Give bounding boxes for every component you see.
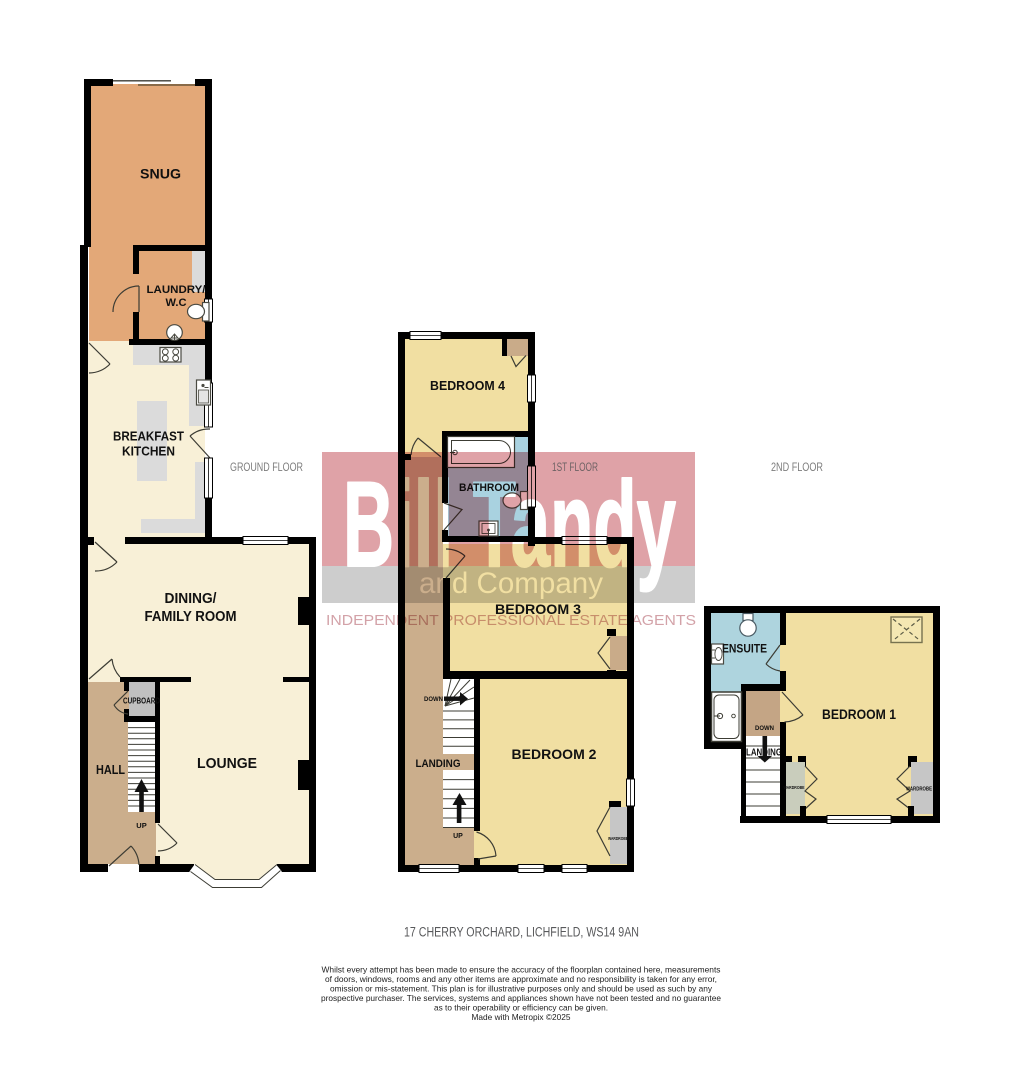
svg-text:DOWN: DOWN	[424, 696, 443, 703]
svg-text:LANDING: LANDING	[416, 758, 461, 770]
svg-text:CUPBOARD: CUPBOARD	[123, 697, 160, 706]
svg-text:Made with Metropix ©2025: Made with Metropix ©2025	[472, 1013, 571, 1022]
svg-text:INDEPENDENT PROFESSIONAL ESTAT: INDEPENDENT PROFESSIONAL ESTATE AGENTS	[326, 612, 696, 629]
svg-text:UP: UP	[453, 833, 463, 840]
svg-text:WARDROBE: WARDROBE	[906, 787, 933, 793]
svg-text:DOWN: DOWN	[755, 725, 774, 732]
svg-text:Whilst every attempt has been: Whilst every attempt has been made to en…	[322, 965, 721, 974]
svg-text:GROUND FLOOR: GROUND FLOOR	[230, 460, 303, 474]
svg-text:BREAKFAST: BREAKFAST	[113, 430, 184, 444]
svg-text:BEDROOM 2: BEDROOM 2	[512, 747, 597, 762]
svg-text:BEDROOM 1: BEDROOM 1	[822, 707, 896, 722]
svg-text:WARDROBE: WARDROBE	[608, 836, 628, 841]
svg-text:omission or mis-statement. Thi: omission or mis-statement. This plan is …	[330, 984, 713, 993]
svg-text:HALL: HALL	[96, 763, 125, 777]
svg-text:as to their operability or eff: as to their operability or efficiency ca…	[434, 1003, 608, 1012]
svg-text:WARDROBE: WARDROBE	[784, 785, 805, 790]
svg-text:KITCHEN: KITCHEN	[122, 445, 175, 459]
svg-text:LAUNDRY/: LAUNDRY/	[147, 284, 206, 296]
svg-text:ENSUITE: ENSUITE	[722, 642, 767, 656]
svg-text:17 CHERRY ORCHARD, LICHFIELD,: 17 CHERRY ORCHARD, LICHFIELD, WS14 9AN	[404, 925, 639, 940]
svg-text:DINING/: DINING/	[165, 591, 217, 607]
svg-text:FAMILY ROOM: FAMILY ROOM	[145, 609, 237, 625]
svg-text:SNUG: SNUG	[140, 166, 181, 182]
svg-text:W.C: W.C	[166, 297, 187, 309]
svg-text:UP: UP	[136, 821, 146, 830]
svg-text:BEDROOM 4: BEDROOM 4	[430, 379, 505, 393]
svg-text:prospective purchaser. The ser: prospective purchaser. The services, sys…	[321, 994, 721, 1003]
svg-text:of doors, windows, rooms and a: of doors, windows, rooms and any other i…	[325, 975, 717, 984]
svg-text:LOUNGE: LOUNGE	[197, 756, 257, 772]
svg-text:2ND FLOOR: 2ND FLOOR	[771, 460, 823, 474]
svg-text:1ST FLOOR: 1ST FLOOR	[552, 460, 598, 474]
